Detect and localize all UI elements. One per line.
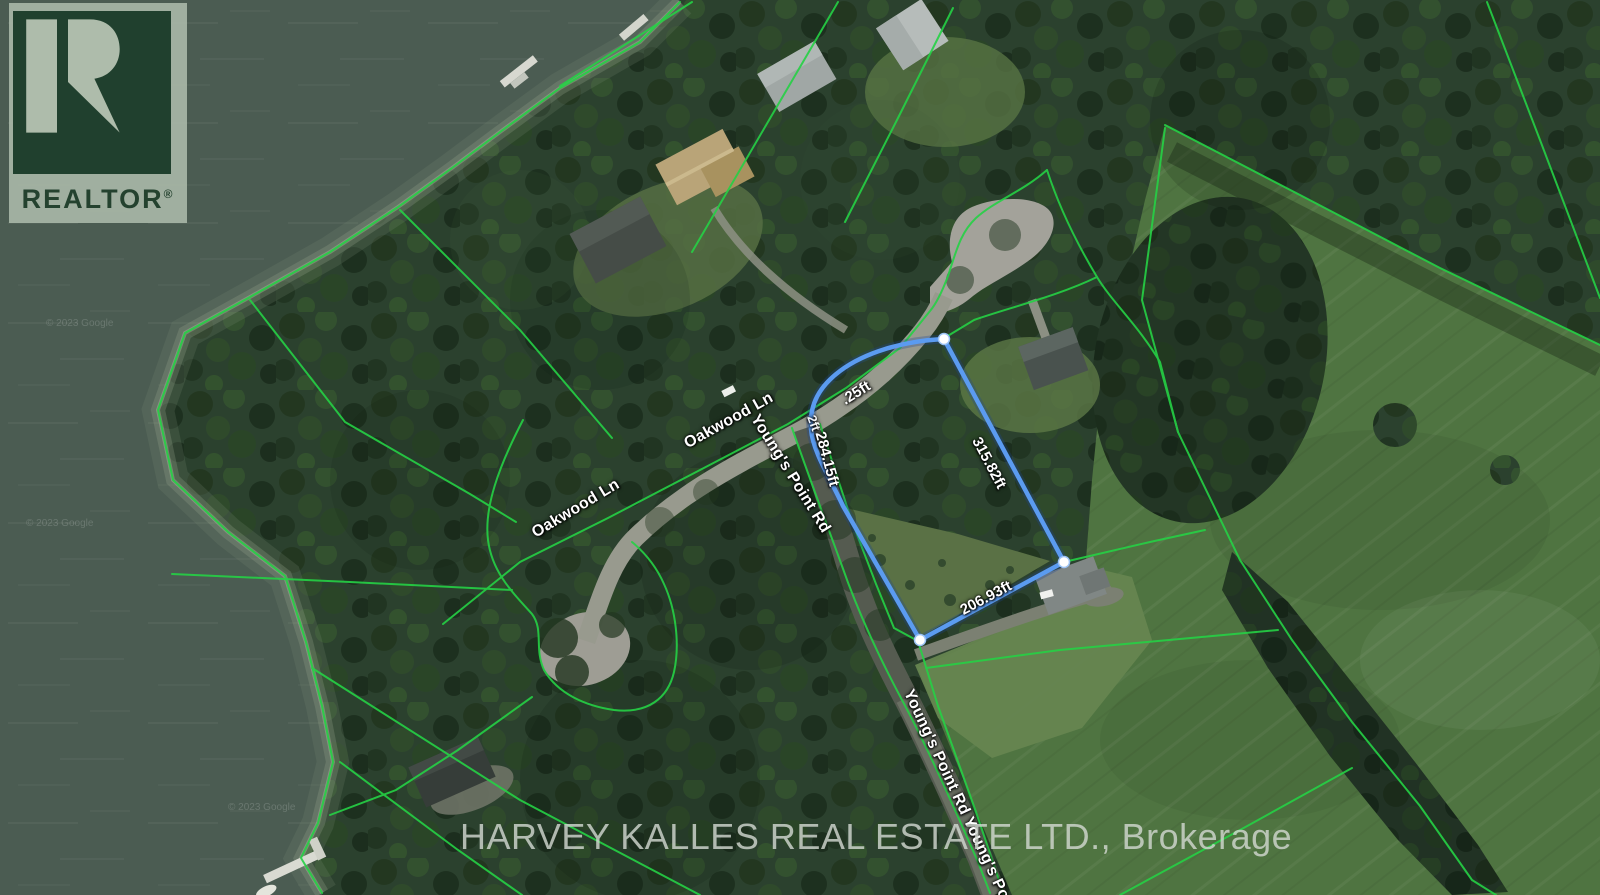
- registered-mark-icon: ®: [164, 187, 175, 201]
- map-tile-credit: © 2023 Google: [26, 518, 93, 529]
- brokerage-watermark: HARVEY KALLES REAL ESTATE LTD., Brokerag…: [460, 816, 1292, 858]
- realtor-logo: REALTOR®: [9, 3, 187, 223]
- map-tile-credit: © 2023 Google: [46, 318, 113, 329]
- realtor-logo-text: REALTOR®: [9, 184, 187, 215]
- satellite-map[interactable]: Oakwood Ln Oakwood Ln Young's Point Rd Y…: [0, 0, 1600, 895]
- realtor-r-icon: [13, 11, 171, 174]
- map-imagery: [0, 0, 1600, 895]
- map-tile-credit: © 2023 Google: [228, 802, 295, 813]
